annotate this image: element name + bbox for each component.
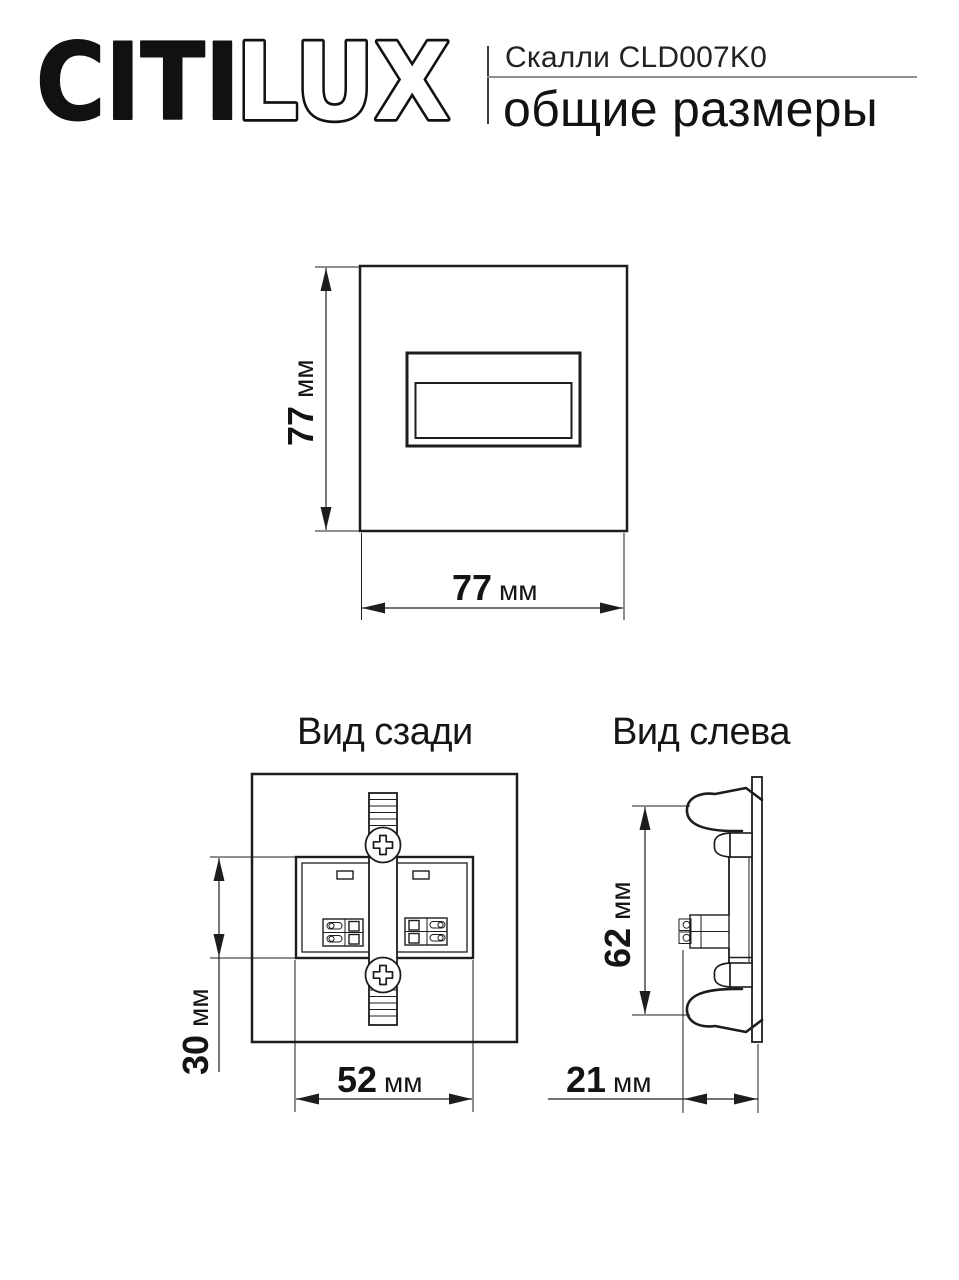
arrowhead-right	[734, 1094, 757, 1105]
clamp-hole	[438, 935, 443, 940]
arrowhead-down	[214, 934, 225, 957]
terminal-port	[349, 922, 359, 932]
dimension-unit: мм	[605, 882, 636, 921]
body-profile	[729, 857, 752, 963]
dimension-unit: мм	[384, 1067, 423, 1098]
spring-clip-top	[687, 788, 762, 831]
front-height-label: 77 мм	[280, 360, 321, 447]
dimension-value: 77	[452, 567, 492, 608]
dimension-value: 62	[597, 928, 638, 968]
datasheet-page: CITI LUX Скалли CLD007K0 общие размеры 7…	[0, 0, 959, 1280]
screw-top-side	[714, 833, 752, 857]
dimension-value: 77	[280, 406, 321, 446]
left-view: Вид слева	[548, 711, 791, 1113]
screw-bottom-side	[714, 963, 752, 987]
phillips-screw-top-icon	[366, 828, 401, 863]
clamp-hole	[438, 922, 443, 927]
terminal-port	[409, 921, 419, 931]
front-panel-outline	[360, 266, 627, 531]
mounting-strap	[366, 793, 401, 1025]
technical-drawing: 77 мм 77 мм Вид сзади	[0, 0, 959, 1280]
pin-hole	[683, 921, 690, 928]
arrowhead-left	[684, 1094, 707, 1105]
arrowhead-right	[600, 603, 623, 614]
clamp-hole	[329, 923, 334, 928]
arrowhead-up	[214, 858, 225, 881]
screw-shaft	[730, 833, 753, 857]
pin-hole	[683, 934, 690, 941]
arrowhead-right	[449, 1094, 472, 1105]
rear-view-title: Вид сзади	[297, 711, 473, 753]
arrowhead-left	[296, 1094, 319, 1105]
terminal-port	[349, 935, 359, 945]
dimension-unit: мм	[288, 360, 319, 399]
dimension-unit: мм	[499, 575, 538, 606]
faceplate-edge	[752, 777, 762, 1042]
clamp-hole	[329, 936, 334, 941]
left-height-dimension: 62 мм	[597, 806, 690, 1015]
rear-height-label: 30 мм	[175, 989, 216, 1076]
front-width-dimension: 77 мм	[362, 533, 625, 620]
left-height-label: 62 мм	[597, 882, 638, 969]
arrowhead-up	[640, 807, 651, 830]
terminal-block-left	[323, 919, 363, 946]
arrowhead-down	[321, 507, 332, 530]
front-recess-inner	[416, 383, 572, 438]
phillips-screw-bottom-icon	[366, 958, 401, 993]
dimension-unit: мм	[613, 1067, 652, 1098]
arrowhead-up	[321, 268, 332, 291]
front-view: 77 мм 77 мм	[280, 266, 627, 620]
slot-left	[337, 871, 353, 879]
screw-head	[714, 833, 730, 857]
arrowhead-left	[362, 603, 385, 614]
dimension-unit: мм	[183, 989, 214, 1028]
slot-right	[413, 871, 429, 879]
terminal-port	[409, 934, 419, 944]
terminal-block-side	[679, 915, 729, 948]
screw-shaft	[730, 963, 753, 987]
terminal-pin	[679, 919, 691, 931]
terminal-block-right	[405, 918, 447, 945]
left-view-title: Вид слева	[612, 711, 791, 753]
front-height-dimension: 77 мм	[280, 267, 360, 531]
dimension-value: 30	[175, 1035, 216, 1075]
spring-clip-bottom	[687, 989, 762, 1032]
dimension-value: 52	[337, 1059, 377, 1100]
front-recess-outer	[407, 353, 580, 446]
arrowhead-down	[640, 991, 651, 1014]
terminal-pin	[679, 932, 691, 944]
rear-view: Вид сзади	[175, 711, 517, 1112]
dimension-value: 21	[566, 1059, 606, 1100]
screw-head	[714, 963, 730, 987]
